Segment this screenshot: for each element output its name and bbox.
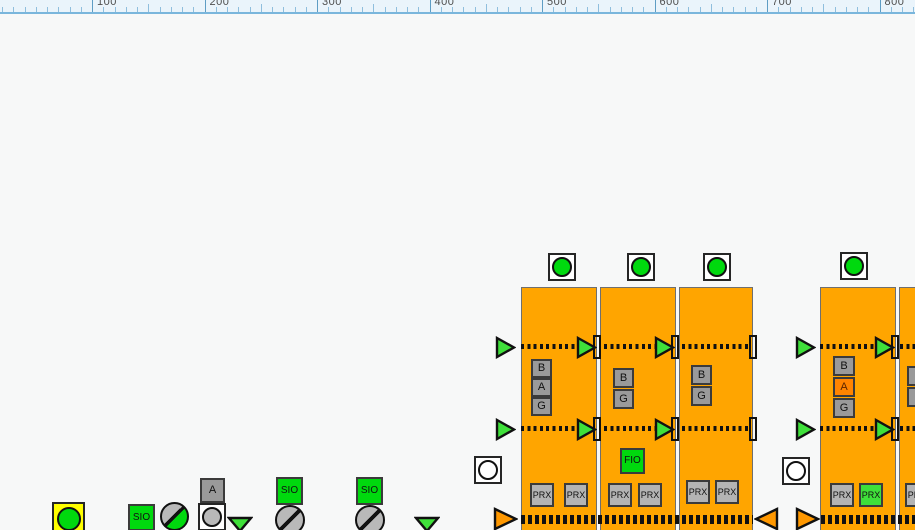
prx-sensor[interactable]: PRX — [608, 483, 632, 507]
mode-lamp-gray[interactable] — [198, 503, 226, 530]
flow-line-bottom — [521, 515, 753, 524]
alarm-lamp-yellow-lamp — [57, 507, 81, 530]
flow-line-middle — [900, 426, 915, 431]
flow-line-bottom — [821, 515, 915, 524]
fio-module[interactable]: FIO — [620, 448, 645, 474]
valve-indicator-gray[interactable] — [355, 505, 385, 530]
idle-status-indicator-lamp — [786, 461, 806, 481]
flow-arrow-right[interactable] — [795, 418, 816, 441]
sensor-tag-a-alarm[interactable]: A — [833, 377, 855, 397]
sensor-tag-a-label: A — [538, 382, 545, 393]
sensor-tag-b[interactable]: B — [833, 356, 855, 376]
idle-status-indicator[interactable] — [474, 456, 502, 484]
sensor-tag-g-label: G — [840, 403, 849, 414]
flow-arrow-right[interactable] — [795, 336, 816, 359]
prx-sensor-active-label: PRX — [862, 491, 881, 500]
sensor-tag-partial[interactable] — [907, 387, 915, 407]
sio-module-label: SIO — [361, 486, 378, 496]
sensor-tag-partial[interactable] — [907, 366, 915, 386]
flow-arrow-right[interactable] — [576, 418, 597, 441]
sio-module-label: SIO — [281, 486, 298, 496]
flow-arrow-right[interactable] — [495, 418, 516, 441]
fio-module-label: FIO — [624, 456, 641, 466]
flow-arrow-right[interactable] — [874, 418, 895, 441]
sensor-tag-b[interactable]: B — [691, 365, 712, 385]
sensor-tag-b-label: B — [698, 370, 705, 381]
flow-arrow-right[interactable] — [654, 336, 675, 359]
sio-module-label: SIO — [133, 513, 150, 523]
hmi-canvas: 100200300400500600700800 BAGBGBGBAGFIOPR… — [0, 0, 915, 530]
sensor-tag-g-label: G — [697, 391, 706, 402]
scada-drawing-area: BAGBGBGBAGFIOPRXPRXPRXPRXPRXPRXPRXPRXPRX… — [0, 0, 915, 530]
flow-arrow-right[interactable] — [654, 418, 675, 441]
flow-line-upper — [900, 344, 915, 349]
transfer-gate-bar[interactable] — [749, 417, 757, 441]
sensor-tag-b[interactable]: B — [531, 359, 552, 378]
idle-status-indicator-lamp — [478, 460, 498, 480]
flow-arrow-right[interactable] — [576, 336, 597, 359]
prx-sensor-label: PRX — [689, 488, 708, 497]
sio-module[interactable]: SIO — [356, 477, 383, 505]
return-arrow-right[interactable] — [795, 507, 820, 530]
return-arrow-left[interactable] — [754, 507, 779, 530]
flow-line-middle — [682, 426, 750, 431]
sensor-tag-b-label: B — [538, 363, 545, 374]
prx-sensor[interactable]: PRX — [530, 483, 554, 507]
tag-a-gray-label: A — [209, 485, 216, 496]
sensor-tag-b-label: B — [840, 361, 847, 372]
prx-sensor[interactable]: PRX — [830, 483, 854, 507]
sensor-tag-a-alarm-label: A — [840, 382, 847, 393]
run-status-indicator[interactable] — [627, 253, 655, 281]
prx-sensor[interactable]: PRX — [564, 483, 588, 507]
sensor-tag-g-label: G — [537, 401, 546, 412]
run-status-indicator[interactable] — [703, 253, 731, 281]
prx-sensor-label: PRX — [641, 491, 660, 500]
prx-sensor[interactable]: PRX — [715, 480, 739, 504]
flow-line-upper — [820, 344, 877, 349]
sio-module[interactable]: SIO — [128, 504, 155, 530]
prx-sensor[interactable]: PRX — [686, 480, 710, 504]
return-arrow-right[interactable] — [493, 507, 518, 530]
run-status-indicator-lamp — [844, 256, 864, 276]
prx-sensor-label: PRX — [611, 491, 630, 500]
run-status-indicator[interactable] — [548, 253, 576, 281]
sensor-tag-b-label: B — [620, 373, 627, 384]
prx-sensor-label: PRX — [567, 491, 586, 500]
sensor-tag-g-label: G — [619, 394, 628, 405]
run-status-indicator-lamp — [552, 257, 572, 277]
prx-sensor[interactable]: PRX — [638, 483, 662, 507]
sio-module[interactable]: SIO — [276, 477, 303, 505]
flow-line-upper — [682, 344, 750, 349]
flow-line-upper — [604, 344, 656, 349]
prx-sensor-active[interactable]: PRX — [859, 483, 883, 507]
prx-sensor[interactable]: PRX — [905, 483, 915, 507]
sensor-tag-g[interactable]: G — [613, 389, 634, 409]
flow-arrow-right[interactable] — [874, 336, 895, 359]
sensor-tag-g[interactable]: G — [691, 386, 712, 406]
run-status-indicator-lamp — [631, 257, 651, 277]
flow-line-middle — [820, 426, 877, 431]
flow-line-middle — [604, 426, 656, 431]
prx-sensor-label: PRX — [908, 491, 915, 500]
transfer-gate-bar[interactable] — [749, 335, 757, 359]
sensor-tag-b[interactable]: B — [613, 368, 634, 388]
sensor-tag-a[interactable]: A — [531, 378, 552, 397]
run-status-indicator-lamp — [707, 257, 727, 277]
run-status-indicator[interactable] — [840, 252, 868, 280]
idle-status-indicator[interactable] — [782, 457, 810, 485]
flow-line-upper — [521, 344, 578, 349]
flow-line-middle — [521, 426, 578, 431]
prx-sensor-label: PRX — [833, 491, 852, 500]
valve-indicator-half-green[interactable] — [160, 502, 189, 530]
tag-a-gray[interactable]: A — [200, 478, 225, 503]
sensor-tag-g[interactable]: G — [833, 398, 855, 418]
divert-arrow-down[interactable] — [414, 515, 440, 530]
valve-indicator-gray[interactable] — [275, 505, 305, 530]
prx-sensor-label: PRX — [533, 491, 552, 500]
divert-arrow-down[interactable] — [227, 515, 253, 530]
flow-arrow-right[interactable] — [495, 336, 516, 359]
sensor-tag-g[interactable]: G — [531, 397, 552, 416]
alarm-lamp-yellow[interactable] — [52, 502, 85, 530]
prx-sensor-label: PRX — [718, 488, 737, 497]
mode-lamp-gray-lamp — [202, 507, 222, 527]
